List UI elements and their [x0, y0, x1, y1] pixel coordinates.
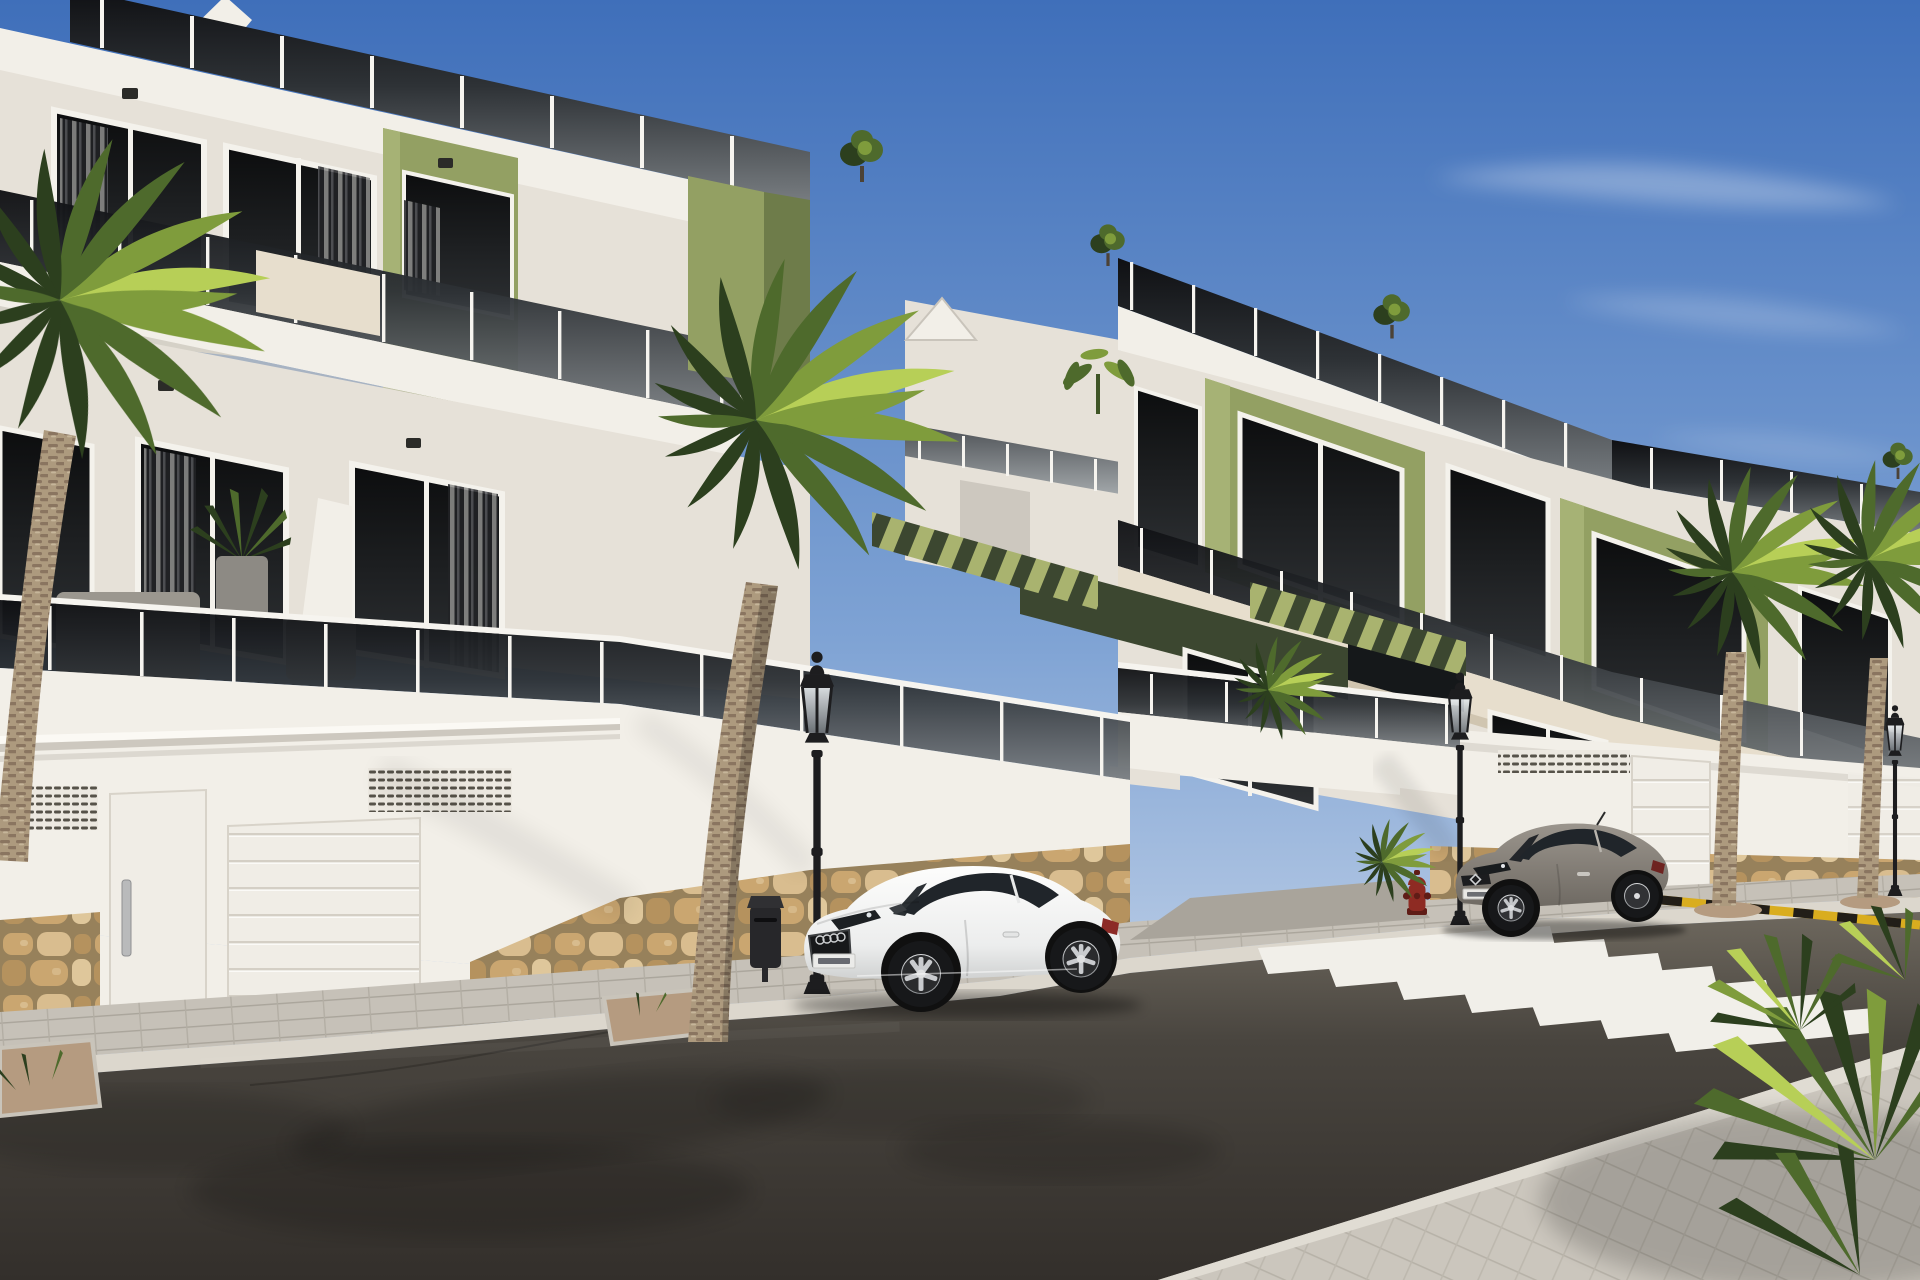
- wall-light: [438, 158, 453, 168]
- door-handle: [1003, 932, 1019, 937]
- car-shadow: [1442, 920, 1686, 940]
- stone-base: [0, 912, 100, 1022]
- scene-svg: [0, 0, 1920, 1280]
- street-scene: [0, 0, 1920, 1280]
- planter: [0, 1040, 100, 1116]
- wall-light: [406, 438, 421, 448]
- car-shadow: [792, 992, 1142, 1018]
- door-handle: [1577, 872, 1590, 876]
- garage-vent: [1498, 750, 1630, 773]
- planter: [604, 990, 700, 1044]
- pedestrian-door: [110, 790, 206, 1028]
- wall-light: [122, 88, 138, 99]
- rear-wheel: [1050, 928, 1112, 990]
- rear-wheel: [1615, 874, 1659, 918]
- front-wheel: [1488, 885, 1534, 931]
